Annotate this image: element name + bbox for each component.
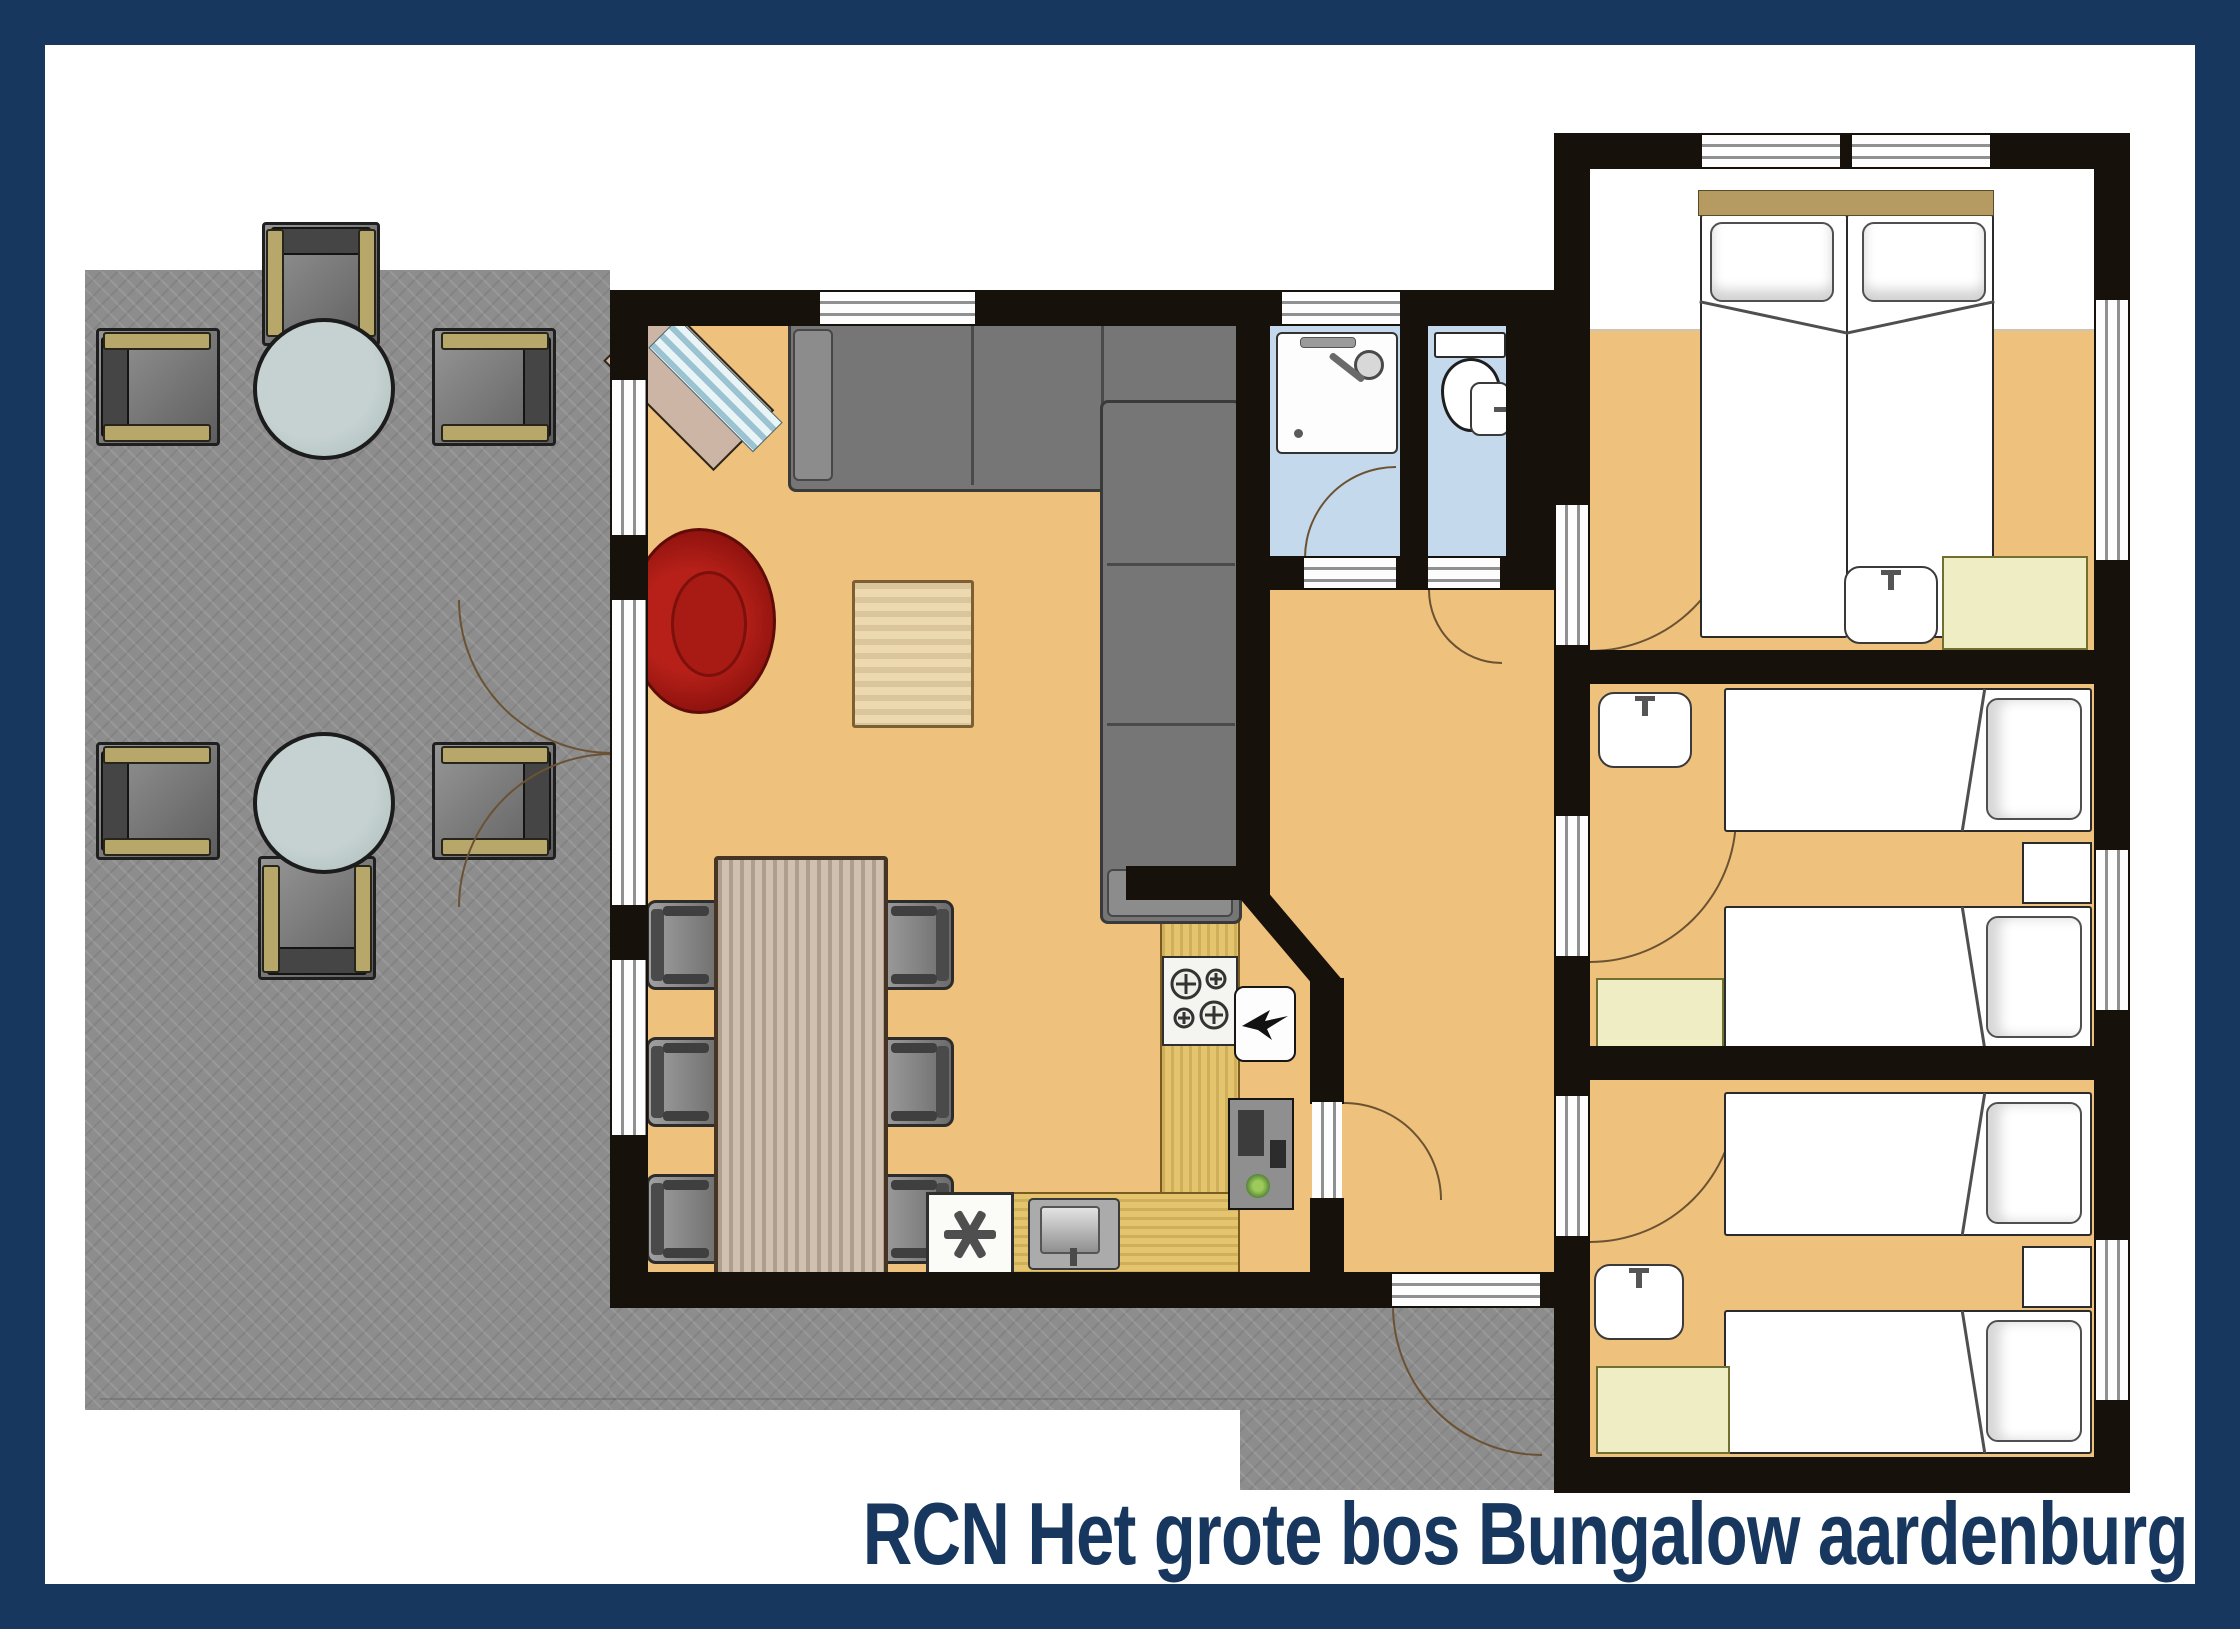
corner-sofa-right [1100,400,1242,924]
wall [1554,133,2130,169]
wall [1590,1046,2094,1080]
single-bed [1724,1310,2092,1454]
wall [610,290,1590,326]
window [2096,300,2128,560]
cabinet [1596,1366,1730,1454]
red-armchair [628,528,776,714]
wash-basin-icon [1598,692,1692,768]
floor-plan-canvas: RCN Het grote bos Bungalow aardenburg [0,0,2240,1629]
shower-icon [1276,332,1398,454]
patio-table [253,318,395,460]
cabinet-with-plant [1228,1098,1294,1210]
wall [1310,1198,1344,1274]
plant-icon [1246,1174,1270,1198]
french-door-threshold [612,600,646,905]
bedroom2-door-threshold [1556,816,1588,956]
bedroom3-door-threshold [1556,1096,1588,1236]
bathroom-door-threshold [1304,558,1396,588]
patio-chair [96,328,220,446]
dining-table [714,856,888,1300]
window [1852,135,1990,167]
single-bed [1700,214,1848,638]
wall [1400,326,1428,556]
entrance-door-threshold [1392,1274,1540,1306]
plan-title: RCN Het grote bos Bungalow aardenburg [863,1483,2188,1585]
window [2096,1240,2128,1400]
freezer-asterisk-icon [926,1192,1014,1276]
single-bed [1724,1092,2092,1236]
wall [1590,650,2094,684]
patio-chair [432,328,556,446]
single-bed [1724,906,2092,1050]
toilet-tank [1434,332,1506,358]
wall [1554,133,1590,1493]
headboard [1698,190,1994,216]
stove-icon [1162,956,1238,1046]
window [612,380,646,535]
wash-basin-icon [1594,1264,1684,1340]
extractor-bird-icon [1234,986,1296,1062]
wall [1310,978,1344,1104]
nightstand [2022,1246,2092,1308]
toilet-basin-icon [1470,382,1510,436]
cabinet [1596,978,1724,1048]
patio-table [253,732,395,874]
wash-basin-icon [1844,566,1938,644]
single-bed [1724,688,2092,832]
window [612,960,646,1135]
kitchen-sink-icon [1028,1198,1120,1270]
cabinet [1942,556,2088,650]
window [820,292,975,324]
wall [1506,326,1554,556]
window [1702,135,1840,167]
patio-chair [96,742,220,860]
patio-chair [258,856,376,980]
coffee-table [852,580,974,728]
bedroom1-door-threshold [1556,505,1588,645]
terrace-edge-line [100,1398,1570,1400]
window [2096,850,2128,1010]
nightstand [2022,842,2092,904]
window [1282,292,1400,324]
kitchen-door-threshold [1312,1102,1342,1198]
toilet-door-threshold [1428,558,1500,588]
wall [1236,326,1270,900]
